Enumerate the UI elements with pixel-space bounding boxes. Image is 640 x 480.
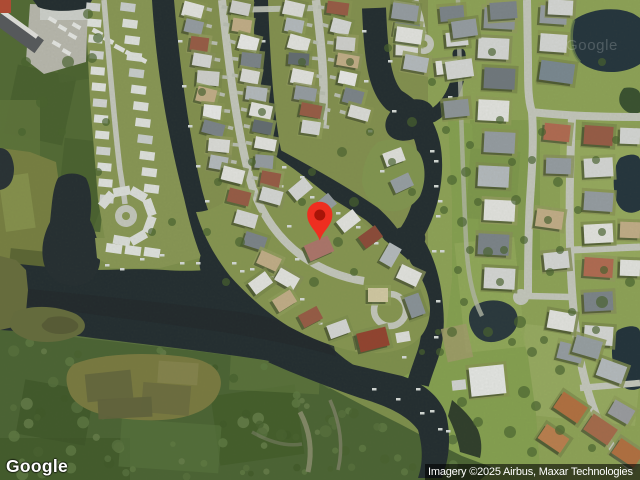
svg-text:Google: Google <box>566 37 618 54</box>
